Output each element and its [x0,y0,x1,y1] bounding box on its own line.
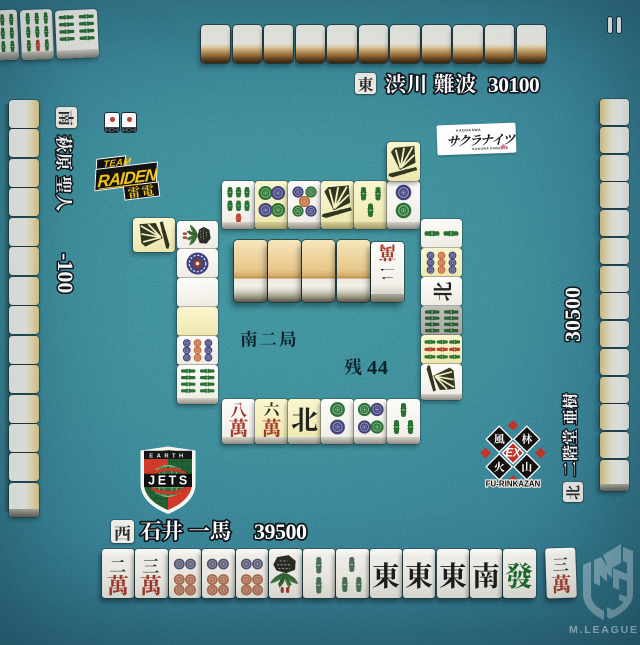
svg-text:萬: 萬 [140,569,162,600]
svg-text:二階堂 亜樹: 二階堂 亜樹 [558,393,581,477]
svg-text:萬: 萬 [379,240,397,266]
svg-text:南二局: 南二局 [240,327,299,352]
svg-text:山: 山 [521,459,532,475]
svg-text:残: 残 [344,354,362,380]
svg-text:FU-RINKAZAN: FU-RINKAZAN [486,480,541,489]
svg-text:林: 林 [521,431,532,447]
svg-text:東: 東 [405,555,433,595]
svg-text:東: 東 [371,555,399,595]
svg-text:萩原 聖人: 萩原 聖人 [52,135,77,212]
svg-text:南: 南 [55,110,78,126]
svg-text:發: 發 [505,555,533,595]
svg-text:火: 火 [494,459,505,475]
svg-text:-100: -100 [53,253,78,293]
svg-text:北: 北 [563,485,584,500]
svg-text:JETS: JETS [148,473,190,487]
svg-text:西: 西 [114,520,131,545]
svg-text:雷電: 雷電 [127,180,157,201]
svg-text:EX: EX [505,448,522,460]
svg-text:風: 風 [494,431,505,447]
svg-text:EARTH: EARTH [149,453,186,459]
svg-text:渋川 難波: 渋川 難波 [385,69,477,99]
svg-text:M.LEAGUE: M.LEAGUE [569,624,639,636]
svg-text:30100: 30100 [488,73,539,97]
svg-text:39500: 39500 [254,519,307,544]
svg-text:石井 一馬: 石井 一馬 [140,515,231,546]
svg-text:東: 東 [357,73,373,96]
svg-text:北: 北 [427,282,456,302]
svg-text:東: 東 [438,555,466,595]
svg-text:萬: 萬 [107,569,129,600]
svg-text:北: 北 [291,399,318,438]
svg-text:30500: 30500 [560,287,585,342]
svg-text:南: 南 [472,555,500,595]
svg-text:44: 44 [367,357,389,379]
